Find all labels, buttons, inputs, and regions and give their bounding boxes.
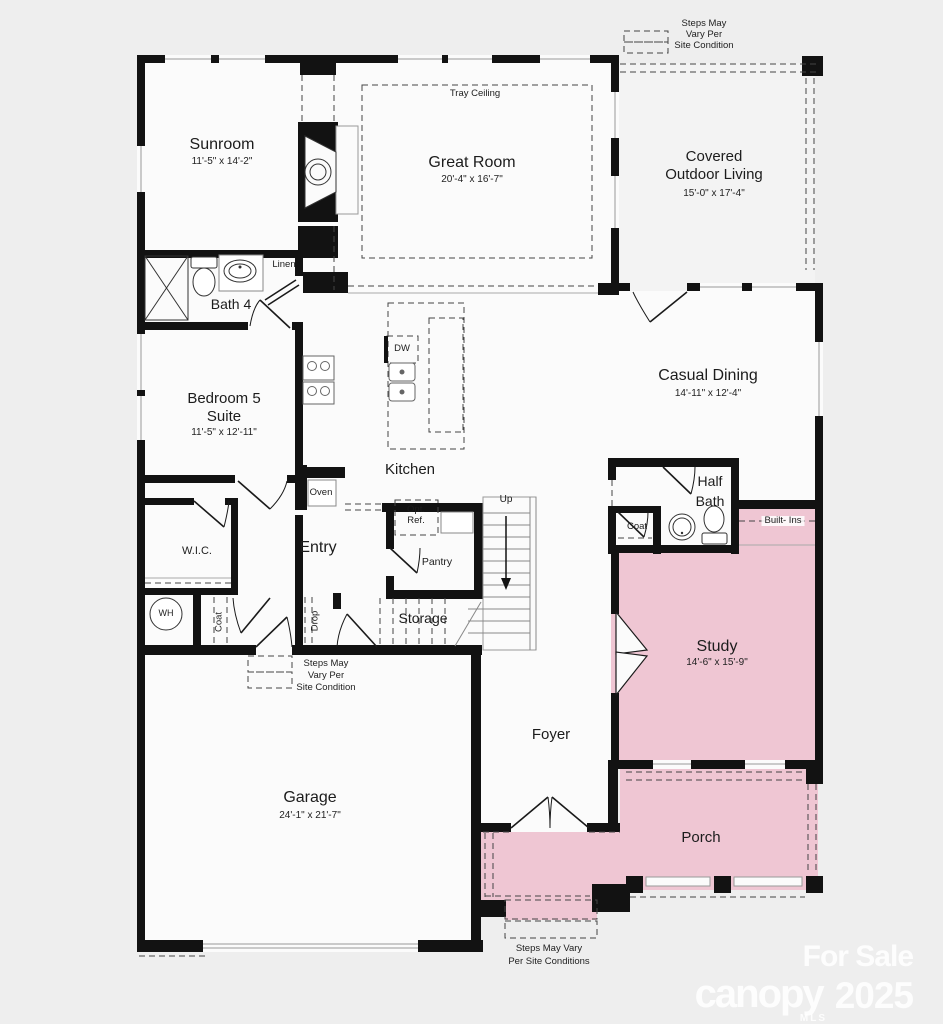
- oven-label: Oven: [310, 488, 333, 498]
- note-top-line2: Vary Per: [686, 30, 722, 40]
- note-porch-line2: Per Site Conditions: [508, 957, 589, 967]
- bedroom5-label-line1: Bedroom 5: [187, 391, 260, 407]
- garage-dims: 24'-1" x 21'-7": [279, 811, 341, 822]
- casual-dining-dims: 14'-11" x 12'-4": [675, 389, 741, 400]
- hearth: [336, 126, 358, 214]
- wic-label: W.I.C.: [182, 546, 212, 558]
- watermark-brand-sub: MLS: [800, 1014, 827, 1024]
- kitchen-label: Kitchen: [385, 462, 435, 478]
- study-label: Study: [697, 639, 738, 656]
- dishwasher-label: DW: [394, 344, 410, 354]
- pantry-label: Pantry: [422, 557, 452, 568]
- study-dims: 14'-6" x 15'-9": [686, 658, 748, 669]
- great-room-label: Great Room: [428, 155, 515, 172]
- opt-ref-label-line2: Ref.: [407, 516, 424, 526]
- tray-ceiling-label: Tray Ceiling: [450, 89, 500, 99]
- bedroom5-label-line2: Suite: [207, 409, 241, 425]
- garage-label: Garage: [283, 790, 336, 807]
- great-room-dims: 20'-4" x 16'-7": [441, 175, 503, 186]
- watermark: For Sale canopy MLS 2025: [695, 942, 913, 1014]
- coat-half-bath-label: Coat: [627, 522, 647, 532]
- half-bath-label-line2: Bath: [696, 494, 725, 509]
- foyer-label: Foyer: [532, 727, 570, 743]
- opt-ref-label-line1: Opt.: [407, 505, 425, 515]
- note-top-line1: Steps May: [682, 19, 727, 29]
- bedroom5-dims: 11'-5" x 12'-11": [191, 428, 257, 439]
- stairs-up-label: Up: [500, 495, 513, 506]
- sink-icon: [219, 255, 263, 291]
- built-ins-label: Built- Ins: [762, 516, 805, 526]
- note-garage-line3: Site Condition: [296, 683, 355, 693]
- counter-cabinet: [441, 512, 473, 533]
- covered-outdoor-living-label-line2: Outdoor Living: [665, 167, 763, 183]
- water-heater-label: WH: [159, 609, 174, 618]
- entry-label: Entry: [299, 540, 336, 557]
- storage-label: Storage: [398, 611, 447, 626]
- pedestal-sink-icon: [669, 514, 695, 540]
- note-garage-line2: Vary Per: [308, 671, 344, 681]
- note-garage-line1: Steps May: [304, 659, 349, 669]
- covered-outdoor-living-dims: 15'-0" x 17'-4": [683, 189, 745, 200]
- note-porch-line1: Steps May Vary: [516, 944, 582, 954]
- casual-dining-label: Casual Dining: [658, 368, 758, 385]
- dw-edge: [384, 336, 388, 363]
- cooktop-icon: [303, 356, 334, 404]
- porch-label: Porch: [681, 830, 720, 846]
- note-top-line3: Site Condition: [674, 41, 733, 51]
- sunroom-dims: 11'-5" x 14'-2": [192, 157, 253, 168]
- half-bath-label-line1: Half: [698, 474, 723, 489]
- linen-label: Linen: [272, 260, 295, 270]
- covered-outdoor-living-label-line1: Covered: [686, 149, 743, 165]
- watermark-brand-logo: canopy: [695, 974, 823, 1014]
- toilet-icon: [191, 257, 217, 296]
- watermark-year: 2025: [835, 977, 913, 1014]
- floor-plan: Steps May Vary Per Site Condition Sunroo…: [0, 0, 943, 1024]
- coat-entry-label: Coat: [214, 612, 225, 632]
- bath4-label: Bath 4: [211, 297, 251, 312]
- sunroom-label: Sunroom: [190, 137, 255, 154]
- watermark-for-sale: For Sale: [695, 942, 913, 972]
- drop-zone-label: Drop: [310, 611, 321, 632]
